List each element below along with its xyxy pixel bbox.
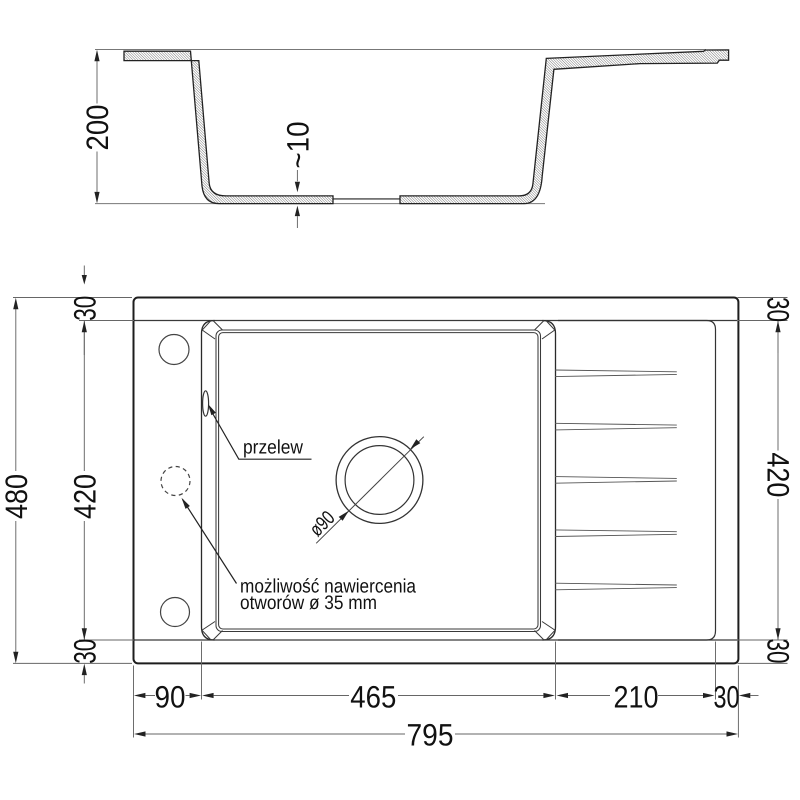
svg-text:30: 30 bbox=[67, 296, 102, 321]
svg-text:465: 465 bbox=[350, 679, 396, 714]
svg-text:480: 480 bbox=[0, 474, 34, 519]
svg-text:200: 200 bbox=[80, 105, 115, 151]
svg-text:90: 90 bbox=[155, 679, 186, 714]
svg-text:otworów ø 35 mm: otworów ø 35 mm bbox=[240, 592, 377, 614]
svg-text:210: 210 bbox=[614, 679, 659, 714]
svg-text:30: 30 bbox=[761, 639, 796, 664]
svg-text:~10: ~10 bbox=[280, 122, 315, 169]
svg-text:420: 420 bbox=[67, 474, 102, 519]
svg-text:30: 30 bbox=[761, 297, 796, 322]
svg-text:30: 30 bbox=[714, 679, 740, 714]
svg-text:795: 795 bbox=[407, 717, 454, 752]
svg-text:420: 420 bbox=[761, 452, 796, 497]
svg-text:30: 30 bbox=[67, 639, 102, 664]
svg-text:przelew: przelew bbox=[243, 437, 304, 459]
